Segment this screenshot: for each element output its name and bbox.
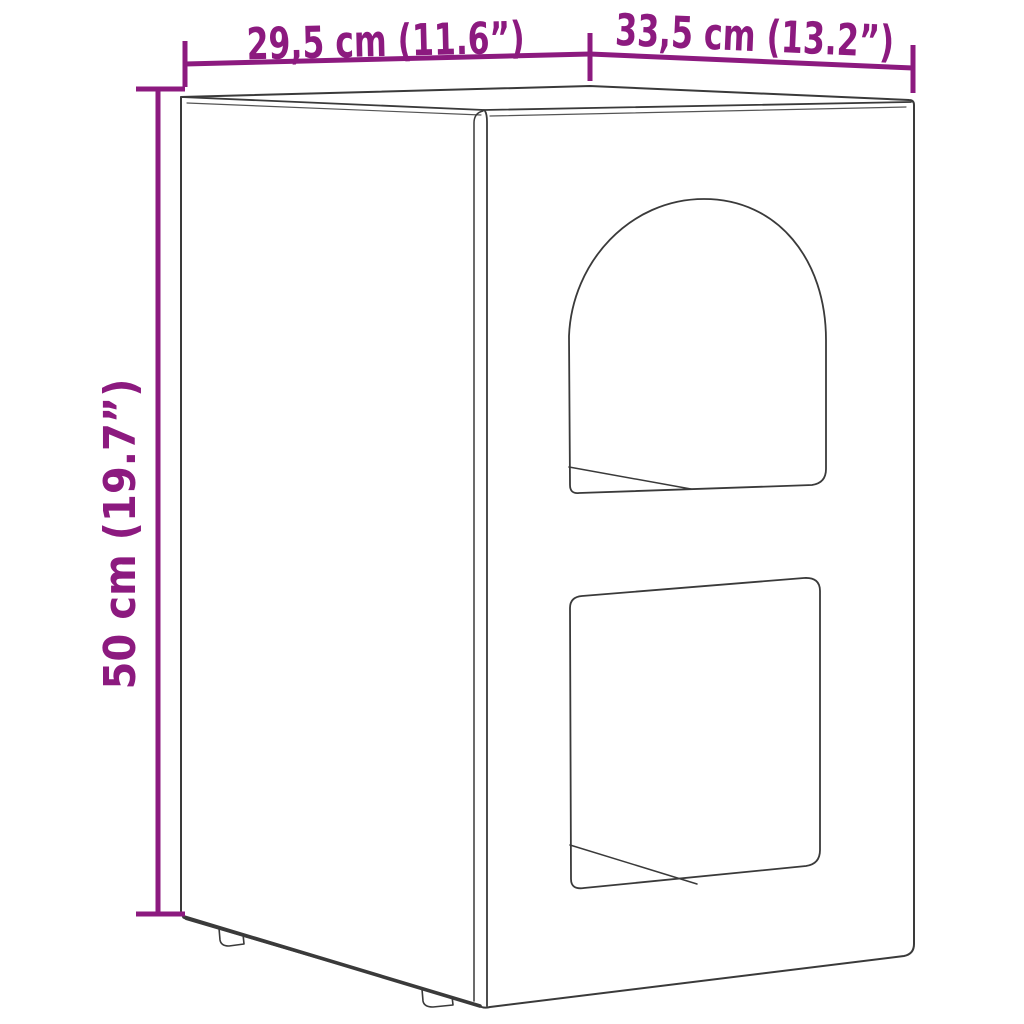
furniture-drawing <box>181 86 914 1008</box>
left-dimension-label: 50 cm (19.7”) <box>95 379 146 690</box>
square-opening <box>570 578 820 888</box>
dimension-diagram: 29,5 cm (11.6”) 33,5 cm (13.2”) 50 cm (1… <box>0 0 1024 1024</box>
arched-opening <box>569 199 826 493</box>
diagram-canvas: 29,5 cm (11.6”) 33,5 cm (13.2”) 50 cm (1… <box>0 0 1024 1024</box>
box-outline <box>181 86 914 1008</box>
top-left-dimension-label: 29,5 cm (11.6”) <box>246 13 525 71</box>
